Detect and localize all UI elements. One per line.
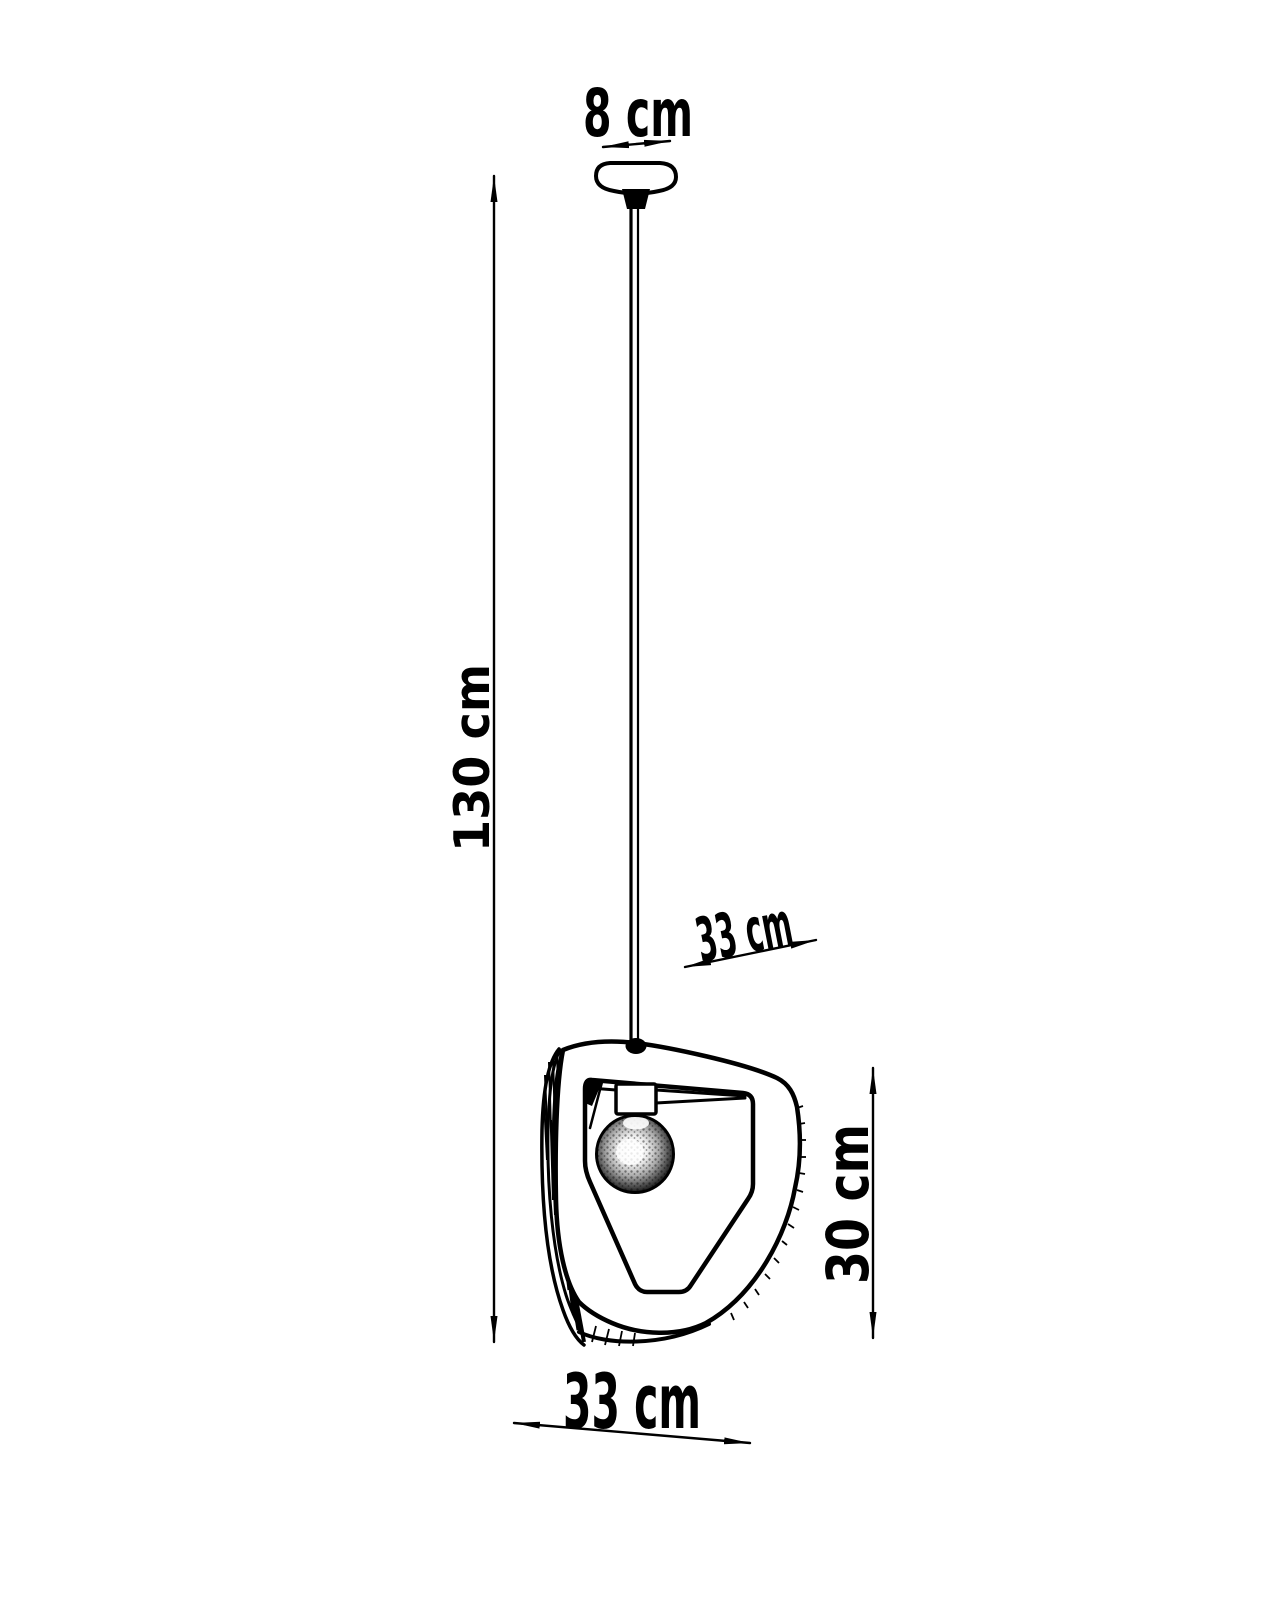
canopy-width-label: 8 cm — [583, 75, 693, 152]
canopy-body — [596, 163, 676, 194]
bulb-neck-highlight — [623, 1117, 649, 1130]
dimension-canopy-width: 8 cm — [583, 75, 693, 152]
dimension-shade-width: 33 cm — [514, 1357, 750, 1446]
shade-height-label: 30 cm — [814, 1124, 882, 1284]
dimension-shade-height: 30 cm — [814, 1068, 882, 1338]
cable-attachment-knob — [626, 1038, 647, 1054]
dimension-shade-depth: 33 cm — [685, 889, 816, 977]
shade-width-label: 33 cm — [563, 1357, 701, 1446]
bulb-center-highlight — [616, 1139, 644, 1165]
shade-depth-label: 33 cm — [690, 889, 798, 977]
suspension-cable — [631, 207, 638, 1040]
canopy-cable-grip — [622, 189, 650, 209]
lamp-dimension-diagram: 8 cm 130 cm 33 cm 30 cm 33 cm — [0, 0, 1280, 1600]
dimension-drop-height: 130 cm — [444, 176, 501, 1342]
drop-height-label: 130 cm — [444, 664, 501, 852]
ceiling-canopy — [596, 163, 676, 209]
bulb-socket — [616, 1084, 656, 1114]
diagram-svg: 8 cm 130 cm 33 cm 30 cm 33 cm — [0, 0, 1280, 1600]
